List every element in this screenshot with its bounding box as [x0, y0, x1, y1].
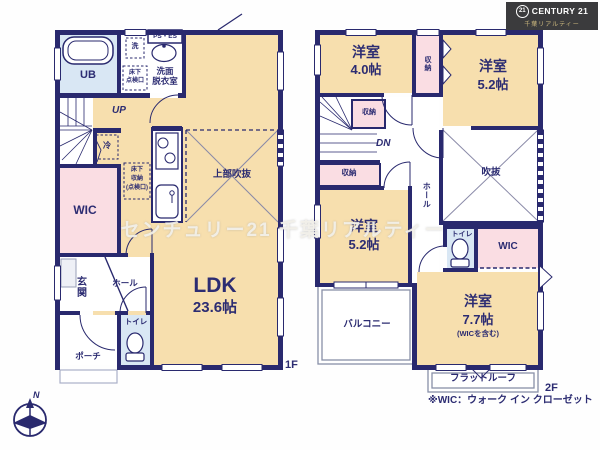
bathtub: [63, 37, 113, 64]
ldk-top-area: [182, 35, 278, 98]
washer-label: 洗: [127, 43, 143, 51]
hatch-label-line2: 点検口: [124, 78, 146, 85]
stairs1f-area: [60, 98, 93, 164]
void1f-label: 上部吹抜: [200, 170, 264, 181]
flat-roof-label: フラットルーフ: [440, 374, 526, 385]
hatch-label-line1: 床下: [124, 70, 146, 77]
logo-row: 21 CENTURY 21: [516, 5, 588, 18]
room-ne-name: 洋室: [455, 58, 531, 74]
floorplan-image: UB 洗 PS・ES 洗面 脱衣室 床下 点検口 UP 冷 床下 収納 (点検口…: [0, 0, 600, 450]
ldk-name-label: LDK: [165, 274, 265, 298]
roof-vent-mark: [218, 14, 242, 30]
void2f-label: 吹抜: [462, 168, 520, 179]
ps-es-label: PS・ES: [149, 33, 181, 40]
room-nw-size: 4.0帖: [330, 63, 402, 78]
toilet1f-label: トイレ: [122, 318, 150, 327]
up-label: UP: [112, 105, 126, 117]
floor-storage-line3: (点検口): [124, 185, 150, 192]
toilet2f-label: トイレ: [448, 231, 476, 239]
wic1f-label: WIC: [60, 204, 110, 218]
dn-label: DN: [376, 138, 390, 150]
room-se-note: (WICを含む): [440, 330, 516, 339]
closet-mid-label: 収納: [353, 109, 385, 117]
floor2-label: 2F: [545, 382, 558, 395]
room-ne-size: 5.2帖: [455, 78, 531, 93]
room-se-size: 7.7帖: [440, 313, 516, 328]
compass-north-label: N: [33, 390, 40, 400]
hall1f-label: ホール: [104, 279, 146, 289]
washroom-label-line2: 脱衣室: [148, 77, 182, 87]
balcony-label: バルコニー: [330, 320, 404, 331]
ldk-size-label: 23.6帖: [165, 299, 265, 316]
porch-step: [60, 370, 117, 383]
wall-vent-mark: [540, 266, 552, 288]
porch-label: ポーチ: [62, 352, 114, 362]
genkan-label: 玄関: [74, 266, 86, 308]
brand-name: CENTURY 21: [532, 6, 588, 16]
room-nw-name: 洋室: [330, 44, 402, 60]
toilet-bowl-1f: [126, 333, 144, 361]
room-se-name: 洋室: [440, 293, 516, 309]
century21-logo: 21 CENTURY 21 千葉リアルティー: [506, 2, 598, 30]
floor-storage-line2: 収納: [124, 176, 150, 183]
kitchen-island: [152, 126, 182, 222]
wic2f-label: WIC: [482, 241, 534, 253]
watermark-text: センチュリー21 千葉リアルティー: [118, 215, 448, 242]
floor-storage-line1: 床下: [124, 167, 150, 174]
washbasin: [152, 44, 176, 61]
bath-label: UB: [70, 69, 106, 82]
compass-icon: [13, 398, 47, 436]
hall2f-label: ホール: [422, 176, 431, 214]
fridge-label: 冷: [98, 141, 116, 150]
closet-low-label: 収納: [320, 169, 378, 178]
century21-badge-icon: 21: [516, 5, 529, 18]
floor1-label: 1F: [285, 359, 298, 372]
toilet-bowl-2f: [451, 239, 469, 267]
closet-top-label: 収納: [423, 48, 431, 80]
wic-footnote: ※WIC：ウォーク イン クローゼット: [428, 395, 593, 407]
brand-subtitle: 千葉リアルティー: [524, 19, 580, 28]
